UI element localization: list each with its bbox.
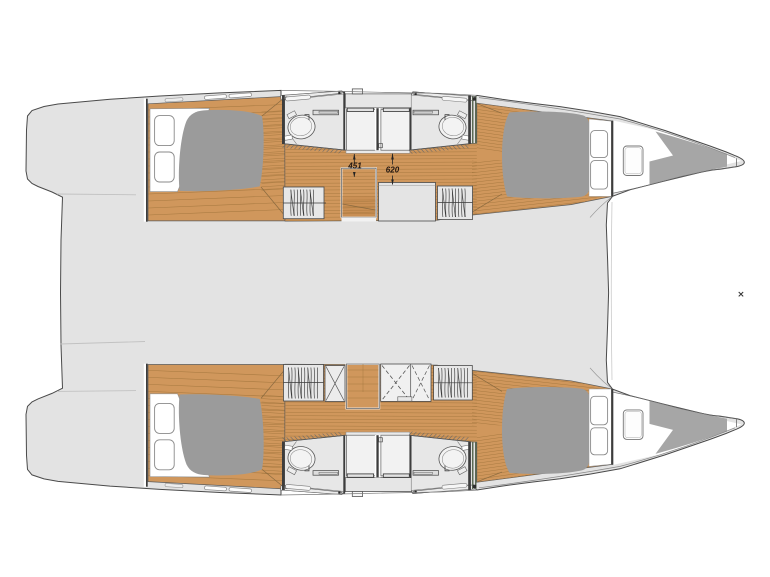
svg-text:620: 620	[386, 165, 400, 174]
svg-text:451: 451	[347, 161, 362, 170]
